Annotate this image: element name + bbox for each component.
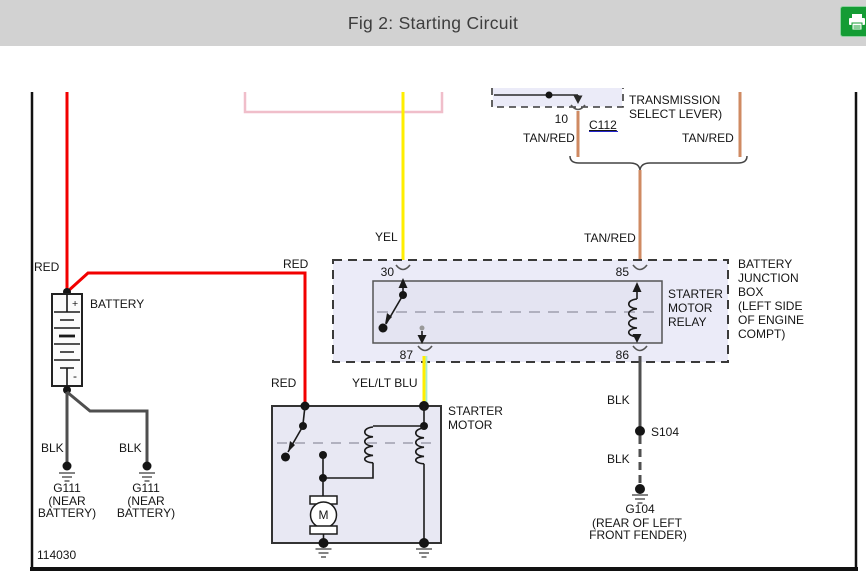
relay-switch: [379, 278, 427, 344]
blk-ground-path: [632, 356, 648, 503]
connector-arc-30: [396, 265, 410, 270]
junction-dot: [301, 402, 310, 411]
connector-arc-c112: [571, 105, 585, 110]
wire-label-yel-lt-blu: YEL/LT BLU: [352, 376, 418, 390]
c112-link-text: C112: [589, 118, 617, 132]
wire-label-tan-red-center: TAN/RED: [584, 231, 636, 245]
arrow-down-icon: [633, 334, 642, 343]
transmission-label-1: TRANSMISSION: [629, 93, 720, 107]
connector-link-c112[interactable]: C112: [589, 118, 618, 132]
starting-circuit-diagram: 10 C112 TRANSMISSION SELECT LEVER) TAN/R…: [0, 0, 866, 587]
wire-label-blk-g111-right: BLK: [119, 441, 142, 455]
ground-symbol-g111-right: [139, 462, 155, 482]
ground-symbol-g111-left: [59, 462, 75, 482]
ground-symbol-motor-left: [316, 538, 332, 557]
printer-icon: [848, 14, 866, 30]
connector-arc-85: [633, 265, 647, 270]
relay-pin-87: 87: [400, 348, 414, 362]
splice-dot-s104: [635, 426, 645, 436]
junction-box-label-1: BATTERY: [738, 257, 792, 271]
wire-yel-lt-blu: [424, 356, 427, 405]
junction-box-label-4: (LEFT SIDE: [738, 299, 802, 313]
relay-pin-85: 85: [616, 265, 630, 279]
arrow-up-icon: [633, 282, 642, 292]
relay-pin-30: 30: [381, 265, 395, 279]
ground-symbol-motor-right: [416, 538, 432, 557]
starter-motor-label-1: STARTER: [448, 404, 503, 418]
arrow-up-icon: [399, 278, 408, 288]
red-wires: [63, 92, 305, 405]
junction-dot: [63, 288, 71, 296]
connector-arc-87: [418, 346, 432, 351]
relay-pin-86: 86: [616, 348, 630, 362]
junction-box-label-2: JUNCTION: [738, 271, 799, 285]
wire-merge-brace: [570, 156, 747, 170]
faded-component-outline: [245, 92, 442, 112]
relay-name-1: STARTER: [668, 287, 723, 301]
junction-box-label-6: COMPT): [738, 327, 785, 341]
junction-dot: [546, 92, 553, 99]
wire-label-tan-red-right: TAN/RED: [682, 131, 734, 145]
wire-label-red-left: RED: [34, 260, 60, 274]
relay-body: [373, 281, 662, 343]
arrow-down-icon: [574, 96, 583, 105]
arrow-icon: [385, 313, 392, 324]
arrow-icon: [288, 441, 295, 452]
battery-symbol: + -: [52, 294, 82, 394]
wire-label-blk-lower: BLK: [607, 452, 630, 466]
wire-label-red-starter: RED: [271, 376, 297, 390]
starter-motor-box: [272, 401, 441, 557]
battery-minus-terminal: -: [73, 369, 77, 383]
title-bar: Fig 2: Starting Circuit: [0, 0, 866, 46]
motor-letter: M: [319, 508, 329, 522]
battery-ground-wires: [67, 392, 147, 462]
page-title: Fig 2: Starting Circuit: [0, 0, 866, 46]
relay-name-3: RELAY: [668, 315, 706, 329]
ground-loc-g111-right-1: (NEAR: [127, 494, 165, 508]
battery-junction-box: [333, 260, 728, 362]
relay-name-2: MOTOR: [668, 301, 713, 315]
ground-loc-g104-1: (REAR OF LEFT: [592, 516, 683, 530]
figure-number: 114030: [37, 548, 76, 562]
ground-loc-g104-2: FRONT FENDER): [589, 528, 687, 542]
motor-symbol: [310, 451, 337, 543]
diagram-border: [30, 92, 858, 569]
transmission-select-lever-box: [492, 88, 623, 110]
connector-arc-86: [633, 346, 647, 351]
wire-label-tan-red-left: TAN/RED: [523, 131, 575, 145]
splice-id-s104: S104: [651, 425, 679, 439]
junction-dot: [419, 401, 429, 411]
solenoid-coils: [323, 406, 428, 543]
wire-label-red-top: RED: [283, 257, 309, 271]
starter-motor-label-2: MOTOR: [448, 418, 493, 432]
battery-label: BATTERY: [90, 297, 144, 311]
ground-loc-g111-right-2: BATTERY): [117, 506, 175, 520]
print-button[interactable]: [840, 6, 866, 37]
arrow-down-icon: [418, 335, 427, 344]
ground-id-g111-right: G111: [132, 481, 160, 495]
ground-loc-g111-left-2: BATTERY): [38, 506, 96, 520]
battery-plus-terminal: +: [72, 298, 78, 310]
transmission-label-2: SELECT LEVER): [629, 107, 722, 121]
junction-box-label-5: OF ENGINE: [738, 313, 804, 327]
starter-switch: [281, 406, 307, 462]
pin-10-label: 10: [555, 112, 569, 126]
internal-switch-wire: [494, 92, 583, 105]
relay-coil: [629, 282, 642, 343]
ground-loc-g111-left-1: (NEAR: [48, 494, 86, 508]
wire-label-yel: YEL: [375, 230, 398, 244]
wire-label-blk-upper: BLK: [607, 393, 630, 407]
ground-symbol-g104: [632, 484, 648, 503]
ground-id-g104: G104: [625, 502, 655, 516]
junction-dot: [63, 386, 71, 394]
wire-label-blk-g111-left: BLK: [41, 441, 64, 455]
junction-box-label-3: BOX: [738, 285, 763, 299]
ground-id-g111-left: G111: [53, 481, 81, 495]
